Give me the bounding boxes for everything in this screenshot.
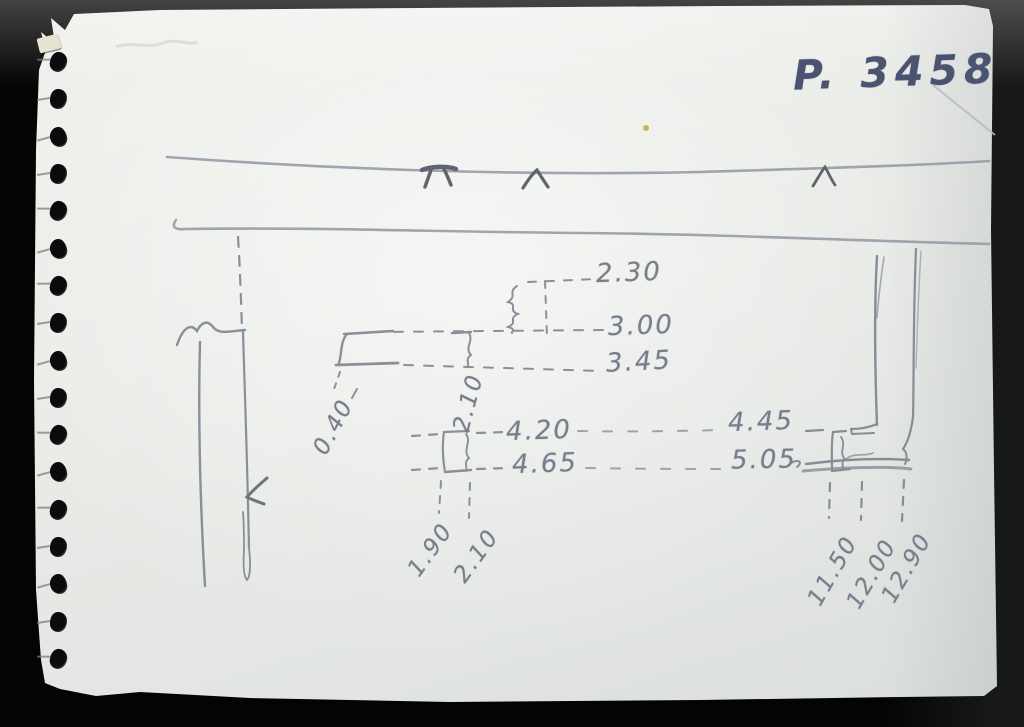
bracket-left [339, 334, 347, 363]
right-profile [791, 249, 921, 521]
notebook-photo: { "photo": { "description": "pencil sket… [0, 0, 1024, 727]
yellow-speck [643, 125, 649, 131]
level-label-3-45: 3.45 [605, 345, 672, 378]
level-3-00-leader [374, 330, 604, 332]
caret-mark-icon [813, 167, 835, 186]
bottom-line-2 [803, 467, 911, 471]
hook [903, 449, 907, 464]
small-bracket-squiggle [466, 434, 469, 471]
level-label-3-00: 3.00 [607, 310, 674, 342]
depth-leader [902, 480, 904, 521]
depth-leader [439, 481, 441, 513]
width-tick [352, 389, 357, 398]
squiggle-top [177, 323, 245, 345]
bracket-right-squiggle [468, 333, 471, 366]
step [851, 424, 877, 429]
small-bracket-left [443, 432, 445, 472]
upper-ground-line [167, 157, 989, 173]
level-label-4-65: 4.65 [511, 448, 578, 480]
bracket-bottom [336, 363, 398, 365]
level-label-5-05: 5.05 [731, 444, 797, 475]
pencil-smudge [116, 41, 197, 47]
arrow-mark-icon [247, 478, 267, 504]
bottom-line-1 [806, 459, 909, 464]
page-number: P. 3458 [792, 44, 999, 99]
bracket-top [344, 331, 393, 334]
left-line [199, 342, 205, 586]
level-4-65-leader [586, 468, 726, 469]
pencil-sketch [0, 0, 1024, 727]
right-bracket-top [833, 431, 846, 432]
level-4-20-leader [578, 430, 724, 431]
ground-lines [167, 157, 989, 244]
dashed-vertical [238, 237, 242, 330]
level-label-4-45: 4.45 [727, 406, 794, 438]
dash-after-4-45 [806, 430, 823, 431]
depth-leader [829, 483, 830, 518]
vertical-leader [545, 281, 547, 337]
left-profile [177, 237, 267, 586]
depth-leader [861, 482, 862, 520]
right-bracket-squiggle [841, 437, 845, 470]
right-line [903, 249, 916, 449]
level-label-4-20: 4.20 [505, 415, 572, 447]
level-label-2-30: 2.30 [595, 257, 662, 289]
depth-leader [469, 483, 470, 518]
level-3-45-leader [404, 365, 602, 371]
level-2-30-leader [528, 279, 597, 282]
left-line [875, 256, 877, 425]
width-leader [333, 372, 340, 392]
hatch-column [508, 286, 518, 333]
right-bracket-left [832, 432, 833, 471]
lower-ground-line [174, 220, 989, 244]
